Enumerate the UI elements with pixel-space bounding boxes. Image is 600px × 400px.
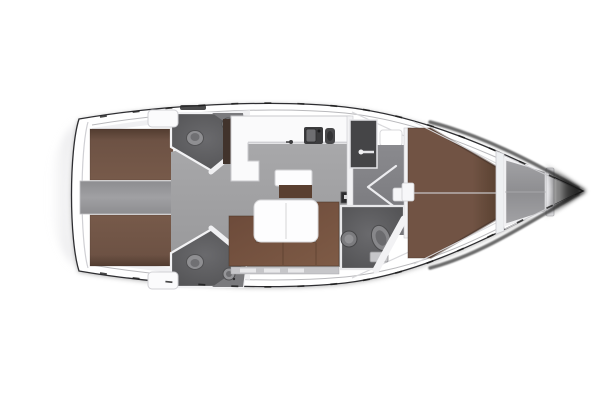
yacht-floorplan [0,0,600,400]
galley-stove-icon [325,128,335,144]
cabinet-base [279,185,312,198]
salon-table [254,200,318,242]
galley-sink-icon [304,127,323,144]
wardrobe [350,120,377,168]
entry-cushion [402,183,414,201]
deck-hatch [380,130,402,146]
locker-hatch [288,269,304,273]
toilet-icon [187,131,204,146]
cockpit-hatch-top [148,110,178,127]
floorplan-canvas [0,0,600,400]
owners-cabin-vberth [402,122,500,264]
toilet-icon [187,255,204,270]
aft-cabin-port-berth [90,129,173,180]
salon-cabinet [275,170,312,198]
aft-cabin-starboard-berth [90,215,173,266]
cabinet-top [275,170,312,186]
locker-hatch [264,269,280,273]
sink-icon [341,231,357,247]
cockpit-hatch-bottom [148,272,178,289]
locker-hatch [240,269,256,273]
forward-bulkhead [496,151,504,234]
